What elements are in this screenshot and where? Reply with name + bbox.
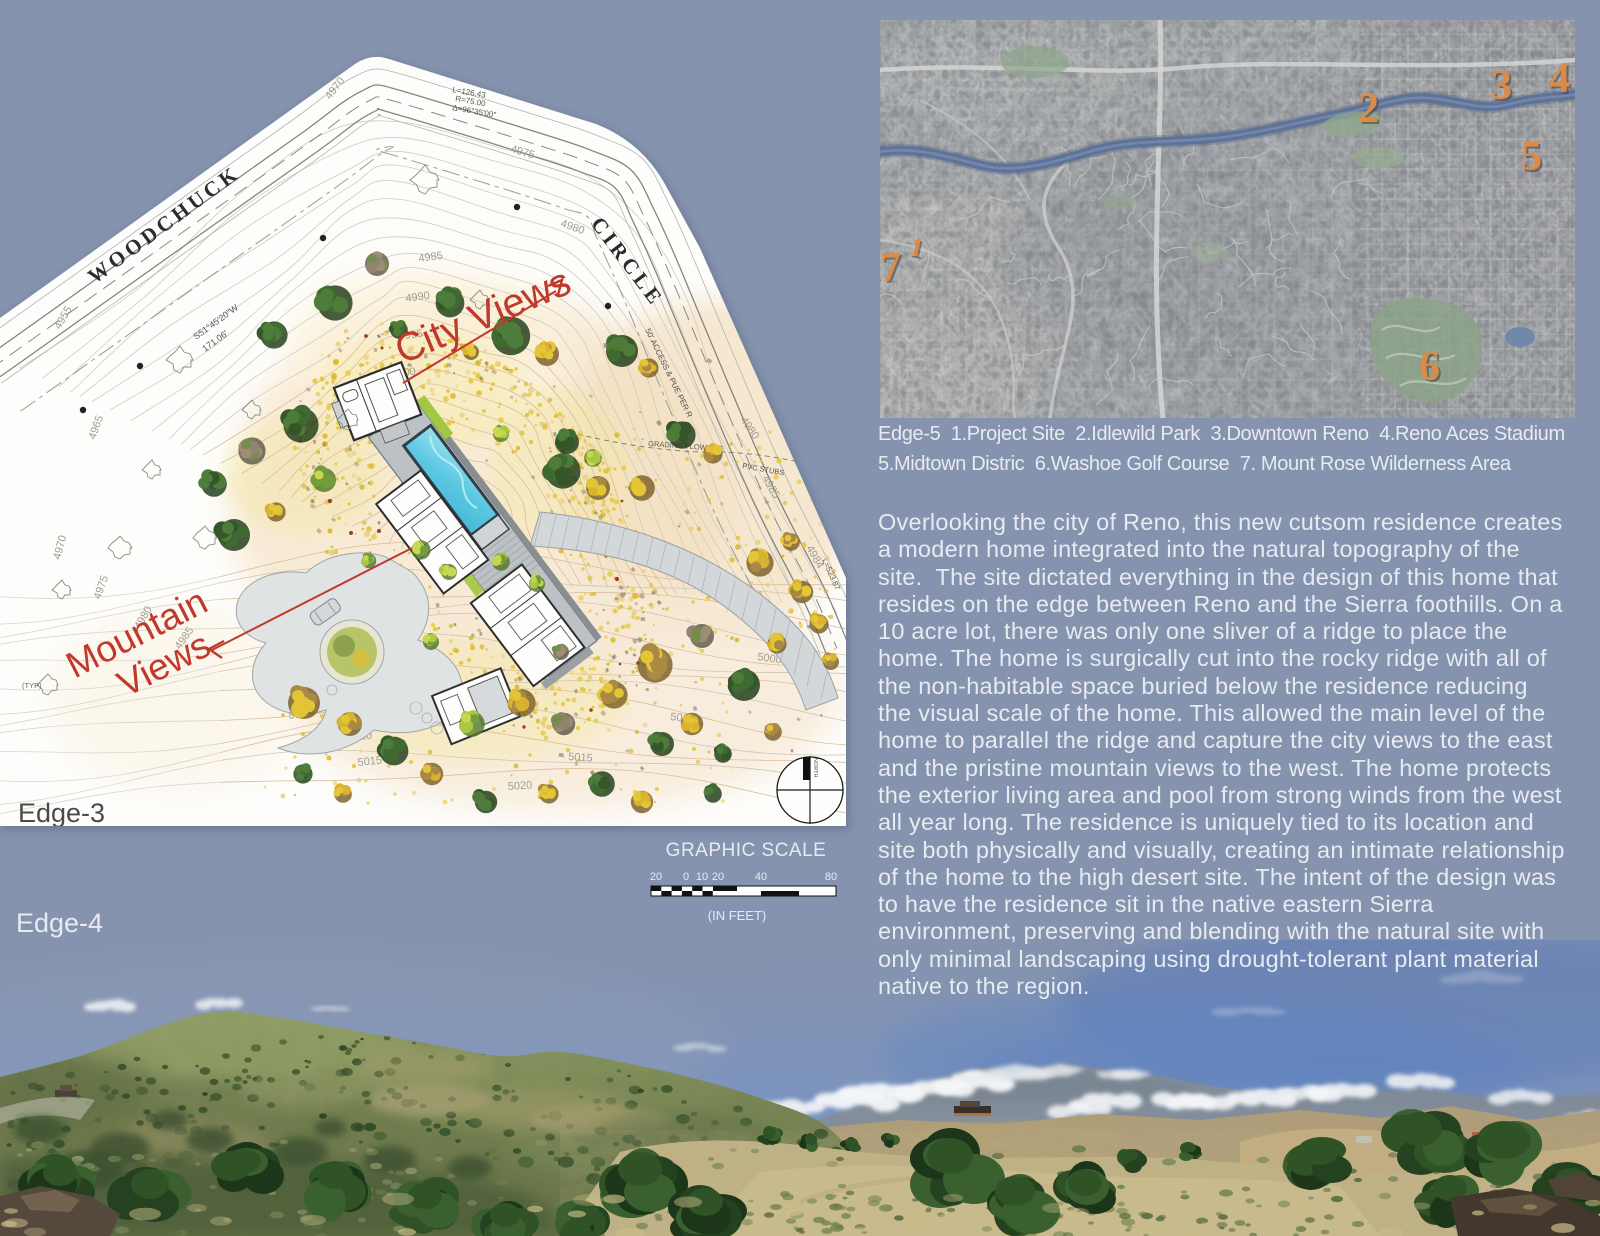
svg-text:5: 5 — [1521, 134, 1542, 180]
svg-text:80: 80 — [825, 871, 837, 883]
svg-text:4: 4 — [1549, 56, 1570, 102]
svg-text:Edge-3: Edge-3 — [18, 798, 105, 828]
svg-text:20: 20 — [712, 871, 724, 883]
svg-text:5015: 5015 — [357, 754, 383, 768]
svg-text:GRAPHIC SCALE: GRAPHIC SCALE — [666, 840, 827, 861]
svg-text:0: 0 — [683, 871, 689, 883]
svg-text:7: 7 — [880, 245, 901, 291]
svg-text:2: 2 — [1358, 86, 1379, 132]
svg-text:AT&T BOX: AT&T BOX — [559, 73, 594, 90]
svg-text:6: 6 — [1419, 344, 1440, 390]
svg-text:NORTH: NORTH — [812, 758, 818, 777]
svg-text:5015: 5015 — [568, 751, 593, 765]
svg-text:5020: 5020 — [507, 779, 532, 793]
svg-text:10: 10 — [696, 871, 708, 883]
svg-text:(IN FEET): (IN FEET) — [708, 908, 767, 923]
svg-text:3: 3 — [1491, 63, 1512, 109]
svg-text:40: 40 — [755, 871, 767, 883]
svg-text:20: 20 — [650, 871, 662, 883]
svg-text:(TYP): (TYP) — [22, 681, 42, 690]
